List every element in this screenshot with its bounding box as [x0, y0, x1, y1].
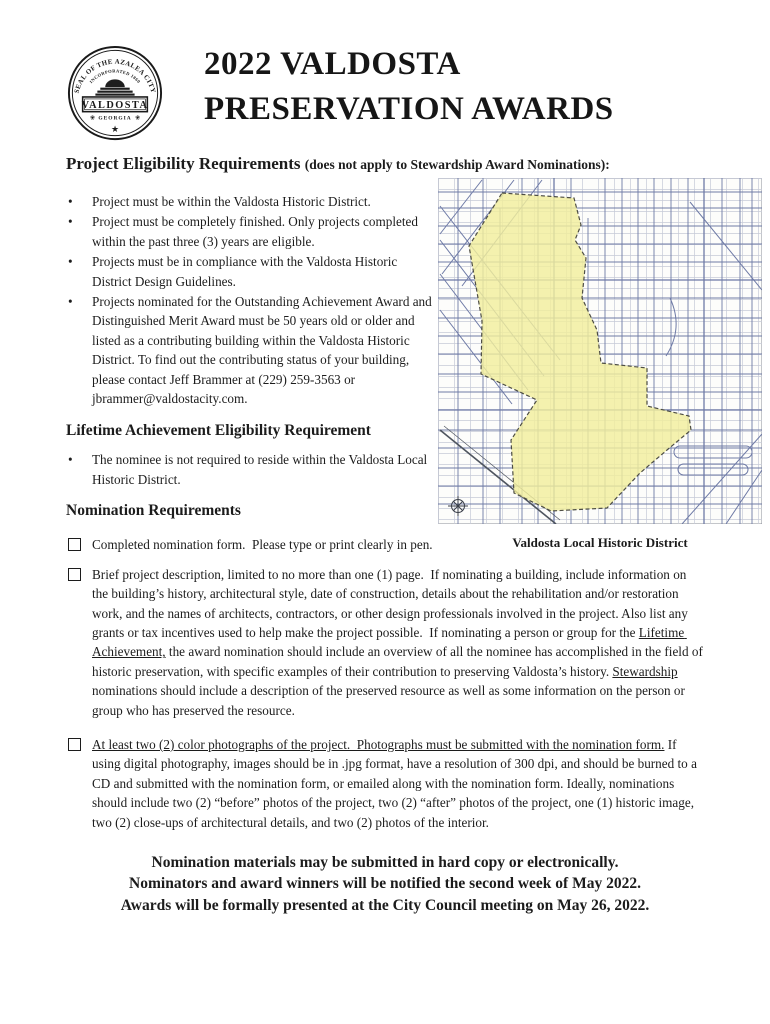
checkbox-icon [68, 738, 81, 751]
nomination-item-text: Brief project description, limited to no… [92, 565, 704, 720]
map-caption: Valdosta Local Historic District [438, 535, 762, 551]
bullet-text: The nominee is not required to reside wi… [92, 450, 438, 489]
azalea-flower-icon: ❀ [135, 115, 140, 122]
list-item: Projects nominated for the Outstanding A… [66, 292, 438, 408]
list-item: Project must be completely finished. Onl… [66, 212, 438, 251]
text-segment: At least two (2) color photographs of th… [92, 737, 664, 752]
eligibility-heading: Project Eligibility Requirements (does n… [0, 154, 770, 174]
district-map-image [438, 178, 762, 524]
footer-line: Nomination materials may be submitted in… [60, 852, 710, 874]
eligibility-heading-text: Project Eligibility Requirements [66, 154, 305, 173]
text-segment: Brief project description, limited to no… [92, 567, 691, 640]
right-column: Valdosta Local Historic District [438, 178, 762, 555]
list-item: The nominee is not required to reside wi… [66, 450, 438, 489]
seal-state-text: GEORGIA [98, 116, 131, 122]
nomination-item: Completed nomination form. Please type o… [66, 535, 438, 554]
eligibility-bullet-list: Project must be within the Valdosta Hist… [66, 192, 438, 408]
capitol-building-icon [95, 79, 134, 95]
header: SEAL OF THE AZALEA CITY INCORPORATED 186… [0, 0, 770, 148]
bullet-text: Project must be completely finished. Onl… [92, 212, 438, 251]
bullet-text: Projects nominated for the Outstanding A… [92, 292, 438, 408]
footer-line: Nominators and award winners will be not… [60, 873, 710, 895]
bullet-text: Project must be within the Valdosta Hist… [92, 192, 438, 211]
page-title-line1: 2022 VALDOSTA [204, 42, 614, 87]
lifetime-heading: Lifetime Achievement Eligibility Require… [66, 422, 438, 440]
flyer-page: SEAL OF THE AZALEA CITY INCORPORATED 186… [0, 0, 770, 1024]
historic-district-map [438, 178, 762, 529]
nomination-item-text: Completed nomination form. Please type o… [92, 535, 438, 554]
seal-state-row: ❀ GEORGIA ❀ [90, 115, 140, 122]
nomination-item-text: At least two (2) color photographs of th… [92, 735, 704, 832]
valdosta-city-seal-logo: SEAL OF THE AZALEA CITY INCORPORATED 186… [66, 42, 164, 148]
seal-banner: VALDOSTA [82, 97, 149, 112]
checkbox-icon [68, 568, 81, 581]
checkbox-icon [68, 538, 81, 551]
page-title-line2: PRESERVATION AWARDS [204, 87, 614, 132]
list-item: Projects must be in compliance with the … [66, 252, 438, 291]
text-segment: Stewardship [612, 664, 677, 679]
page-title: 2022 VALDOSTA PRESERVATION AWARDS [204, 42, 614, 132]
text-segment: Completed nomination form. Please type o… [92, 537, 433, 552]
nomination-heading: Nomination Requirements [66, 502, 438, 520]
left-column: Project must be within the Valdosta Hist… [66, 178, 438, 555]
lifetime-bullet-list: The nominee is not required to reside wi… [66, 450, 438, 489]
footer-notice: Nomination materials may be submitted in… [0, 852, 770, 917]
nomination-item: Brief project description, limited to no… [66, 565, 704, 720]
content-columns: Project must be within the Valdosta Hist… [0, 178, 770, 555]
nomination-item: At least two (2) color photographs of th… [66, 735, 704, 832]
seal-star-icon: ★ [111, 124, 119, 134]
seal-banner-text: VALDOSTA [82, 100, 149, 111]
azalea-flower-icon: ❀ [90, 115, 95, 122]
nomination-full-items: Brief project description, limited to no… [0, 565, 770, 832]
eligibility-heading-note: (does not apply to Stewardship Award Nom… [305, 157, 610, 172]
footer-line: Awards will be formally presented at the… [60, 895, 710, 917]
bullet-text: Projects must be in compliance with the … [92, 252, 438, 291]
list-item: Project must be within the Valdosta Hist… [66, 192, 438, 211]
